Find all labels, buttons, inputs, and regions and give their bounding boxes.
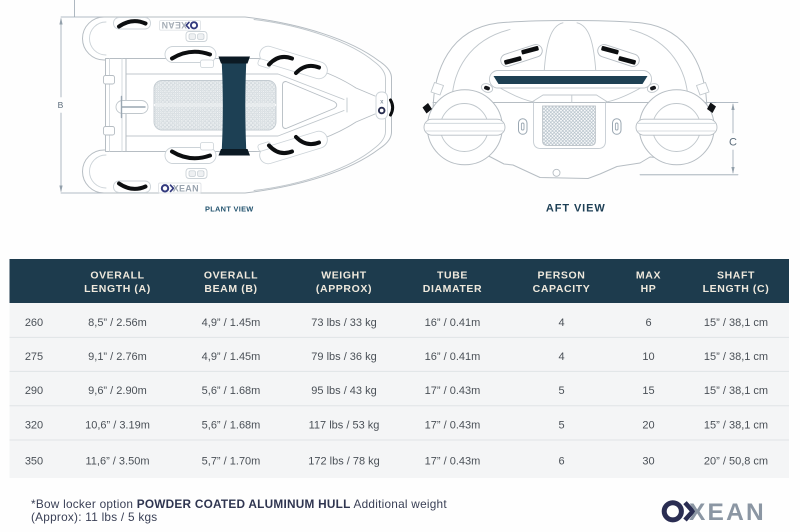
svg-text:BEAM (B): BEAM (B) (204, 283, 257, 295)
svg-text:LENGTH (A): LENGTH (A) (84, 283, 151, 295)
svg-text:CAPACITY: CAPACITY (533, 283, 591, 295)
svg-text:15” / 38,1 cm: 15” / 38,1 cm (704, 317, 768, 329)
svg-text:PERSON: PERSON (538, 270, 586, 282)
svg-text:20: 20 (642, 420, 654, 432)
svg-text:17” / 0.43m: 17” / 0.43m (425, 456, 481, 468)
svg-text:OVERALL: OVERALL (90, 270, 144, 282)
svg-text:30: 30 (642, 456, 654, 468)
svg-text:5,6” / 1.68m: 5,6” / 1.68m (202, 420, 261, 432)
svg-text:16” / 0.41m: 16” / 0.41m (425, 351, 481, 363)
svg-text:20” / 50,8 cm: 20” / 50,8 cm (704, 456, 768, 468)
svg-text:AFT VIEW: AFT VIEW (546, 202, 606, 214)
svg-text:4,9” / 1.45m: 4,9” / 1.45m (202, 317, 261, 329)
svg-text:350: 350 (25, 456, 43, 468)
svg-text:8,5” / 2.56m: 8,5” / 2.56m (88, 317, 147, 329)
svg-text:(APPROX): (APPROX) (316, 283, 372, 295)
svg-text:SHAFT: SHAFT (717, 270, 755, 282)
svg-text:4: 4 (558, 317, 564, 329)
svg-text:15: 15 (642, 385, 654, 397)
svg-text:15” / 38,1 cm: 15” / 38,1 cm (704, 385, 768, 397)
svg-text:172 lbs / 78 kg: 172 lbs / 78 kg (308, 456, 380, 468)
svg-text:C: C (729, 137, 737, 149)
svg-text:4,9” / 1.45m: 4,9” / 1.45m (202, 351, 261, 363)
svg-text:11,6” / 3.50m: 11,6” / 3.50m (86, 456, 150, 468)
svg-text:MAX: MAX (636, 270, 661, 282)
svg-text:HP: HP (641, 283, 657, 295)
svg-text:79 lbs / 36 kg: 79 lbs / 36 kg (311, 351, 376, 363)
svg-text:DIAMATER: DIAMATER (423, 283, 482, 295)
svg-text:XEAN: XEAN (689, 499, 766, 526)
svg-text:4: 4 (558, 351, 564, 363)
svg-text:10: 10 (642, 351, 654, 363)
svg-text:320: 320 (25, 420, 43, 432)
svg-text:6: 6 (645, 317, 651, 329)
svg-text:16” / 0.41m: 16” / 0.41m (425, 317, 481, 329)
svg-text:5: 5 (558, 420, 564, 432)
svg-text:260: 260 (25, 317, 43, 329)
svg-text:17” / 0.43m: 17” / 0.43m (425, 420, 481, 432)
svg-text:LENGTH (C): LENGTH (C) (703, 283, 770, 295)
svg-text:PLANT VIEW: PLANT VIEW (205, 205, 254, 214)
svg-text:15” / 38,1 cm: 15” / 38,1 cm (704, 420, 768, 432)
svg-text:117 lbs / 53 kg: 117 lbs / 53 kg (309, 420, 380, 432)
svg-text:15” / 38,1 cm: 15” / 38,1 cm (704, 351, 768, 363)
svg-text:5: 5 (558, 385, 564, 397)
svg-text:B: B (58, 100, 64, 110)
svg-text:290: 290 (25, 385, 43, 397)
svg-text:OVERALL: OVERALL (204, 270, 258, 282)
svg-text:5,7” / 1.70m: 5,7” / 1.70m (202, 456, 261, 468)
svg-text:XEAN: XEAN (161, 20, 187, 30)
svg-text:9,1” / 2.76m: 9,1” / 2.76m (88, 351, 147, 363)
svg-text:5,6” / 1.68m: 5,6” / 1.68m (202, 385, 261, 397)
svg-text:(Approx): 11 lbs / 5 kgs: (Approx): 11 lbs / 5 kgs (31, 510, 157, 524)
svg-text:275: 275 (25, 351, 43, 363)
svg-text:6: 6 (558, 456, 564, 468)
svg-text:*Bow locker option POWDER COAT: *Bow locker option POWDER COATED ALUMINU… (31, 497, 447, 511)
svg-text:95 lbs / 43 kg: 95 lbs / 43 kg (311, 385, 376, 397)
svg-text:XEAN: XEAN (173, 184, 199, 194)
svg-text:9,6” / 2.90m: 9,6” / 2.90m (88, 385, 147, 397)
svg-text:10,6” / 3.19m: 10,6” / 3.19m (85, 420, 150, 432)
svg-text:TUBE: TUBE (437, 270, 468, 282)
svg-text:73 lbs / 33 kg: 73 lbs / 33 kg (311, 317, 376, 329)
svg-text:WEIGHT: WEIGHT (321, 270, 367, 282)
svg-text:17” / 0.43m: 17” / 0.43m (425, 385, 481, 397)
